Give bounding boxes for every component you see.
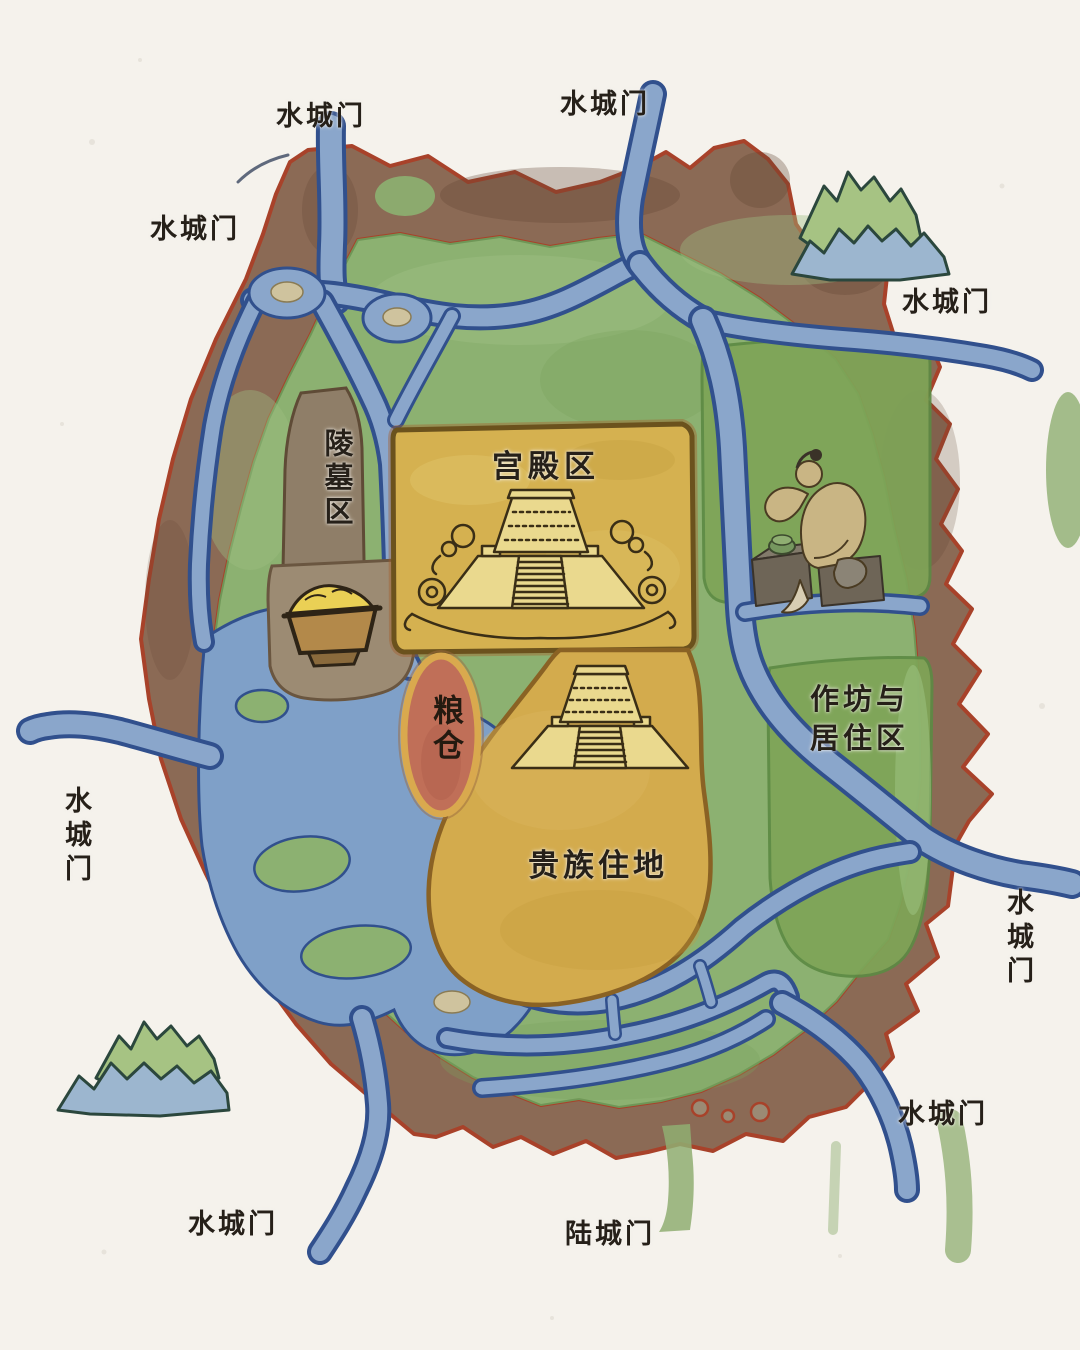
granary-region xyxy=(399,651,483,819)
map-canvas xyxy=(0,0,1080,1350)
liangzhu-city-map: 水城门 水城门 水城门 水城门 水城门 水城门 水城门 水城门 陆城门 宫殿区 … xyxy=(0,0,1080,1350)
